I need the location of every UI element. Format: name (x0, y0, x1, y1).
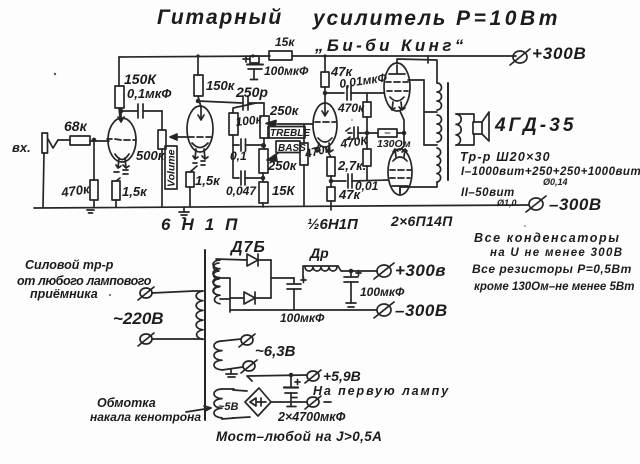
svg-text:„Би-би Кинг“: „Би-би Кинг“ (314, 36, 467, 55)
svg-text:500к: 500к (136, 148, 166, 163)
svg-text:0,047: 0,047 (226, 184, 257, 198)
svg-text:68к: 68к (64, 118, 88, 134)
svg-text:Тр-р Ш20×30: Тр-р Ш20×30 (460, 150, 551, 164)
svg-text:Р=10Вт: Р=10Вт (456, 7, 561, 30)
svg-text:+300В: +300В (532, 44, 587, 63)
svg-text:–300В: –300В (395, 301, 448, 320)
svg-text:250р: 250р (235, 84, 268, 100)
svg-text:Др: Др (309, 245, 329, 261)
svg-text:2×4700мкФ: 2×4700мкФ (277, 410, 346, 424)
svg-text:На первую лампу: На первую лампу (313, 384, 450, 398)
svg-text:250к: 250к (267, 158, 298, 173)
svg-text:~5В: ~5В (218, 401, 239, 413)
svg-text:Ø1,0: Ø1,0 (497, 198, 517, 208)
svg-text:470к: 470к (337, 101, 365, 115)
svg-text:Силовой тр-р: Силовой тр-р (25, 258, 114, 272)
svg-text:накала кенотрона: накала кенотрона (90, 410, 201, 424)
svg-text:470к: 470к (59, 181, 91, 200)
svg-text:вх.: вх. (12, 140, 31, 155)
svg-text:Обмотка: Обмотка (97, 396, 156, 410)
svg-text:250к: 250к (269, 103, 300, 118)
svg-text:Ø0,14: Ø0,14 (543, 177, 568, 187)
svg-text:150К: 150К (124, 71, 157, 87)
svg-text:0,1мкФ: 0,1мкФ (127, 86, 172, 101)
svg-text:100к: 100к (235, 112, 263, 129)
svg-text:–300В: –300В (549, 195, 602, 214)
svg-text:15К: 15К (272, 183, 295, 198)
svg-text:Volume: Volume (166, 149, 178, 187)
svg-text:100мкФ: 100мкФ (360, 285, 405, 299)
svg-text:+5,9В: +5,9В (323, 368, 361, 384)
svg-text:4ГД-35: 4ГД-35 (494, 115, 577, 136)
svg-text:0,01: 0,01 (355, 179, 379, 193)
svg-text:15к: 15к (275, 35, 295, 49)
svg-text:+300в: +300в (395, 261, 446, 280)
svg-text:~6,3В: ~6,3В (255, 343, 296, 360)
svg-text:130Ом: 130Ом (377, 138, 411, 150)
svg-text:150к: 150к (206, 78, 236, 93)
svg-text:приёмника: приёмника (30, 287, 98, 301)
svg-text:2×6П14П: 2×6П14П (390, 213, 453, 229)
svg-text:Все резисторы Р=0,5Вт: Все резисторы Р=0,5Вт (472, 262, 632, 276)
svg-text:BASS: BASS (278, 143, 306, 154)
svg-text:от любого лампового: от любого лампового (17, 274, 152, 288)
svg-text:6Н1П: 6Н1П (161, 215, 248, 234)
svg-text:2,7к.: 2,7к. (337, 158, 366, 173)
svg-text:Гитарный: Гитарный (157, 6, 283, 29)
svg-text:1,5к: 1,5к (195, 173, 221, 188)
svg-text:100мкФ: 100мкФ (264, 64, 309, 78)
svg-text:100мкФ: 100мкФ (280, 311, 325, 325)
svg-text:усилитель: усилитель (312, 7, 447, 30)
svg-text:½6Н1П: ½6Н1П (307, 216, 359, 233)
svg-text:кроме 130Ом–не менее 5Вт: кроме 130Ом–не менее 5Вт (474, 281, 634, 293)
svg-text:~220В: ~220В (113, 309, 164, 328)
svg-text:1,5к: 1,5к (122, 184, 148, 199)
svg-text:на U не менее 300В: на U не менее 300В (490, 247, 623, 259)
svg-text:Все конденсаторы: Все конденсаторы (474, 231, 621, 245)
svg-text:Мост–любой на J>0,5А: Мост–любой на J>0,5А (216, 429, 382, 444)
